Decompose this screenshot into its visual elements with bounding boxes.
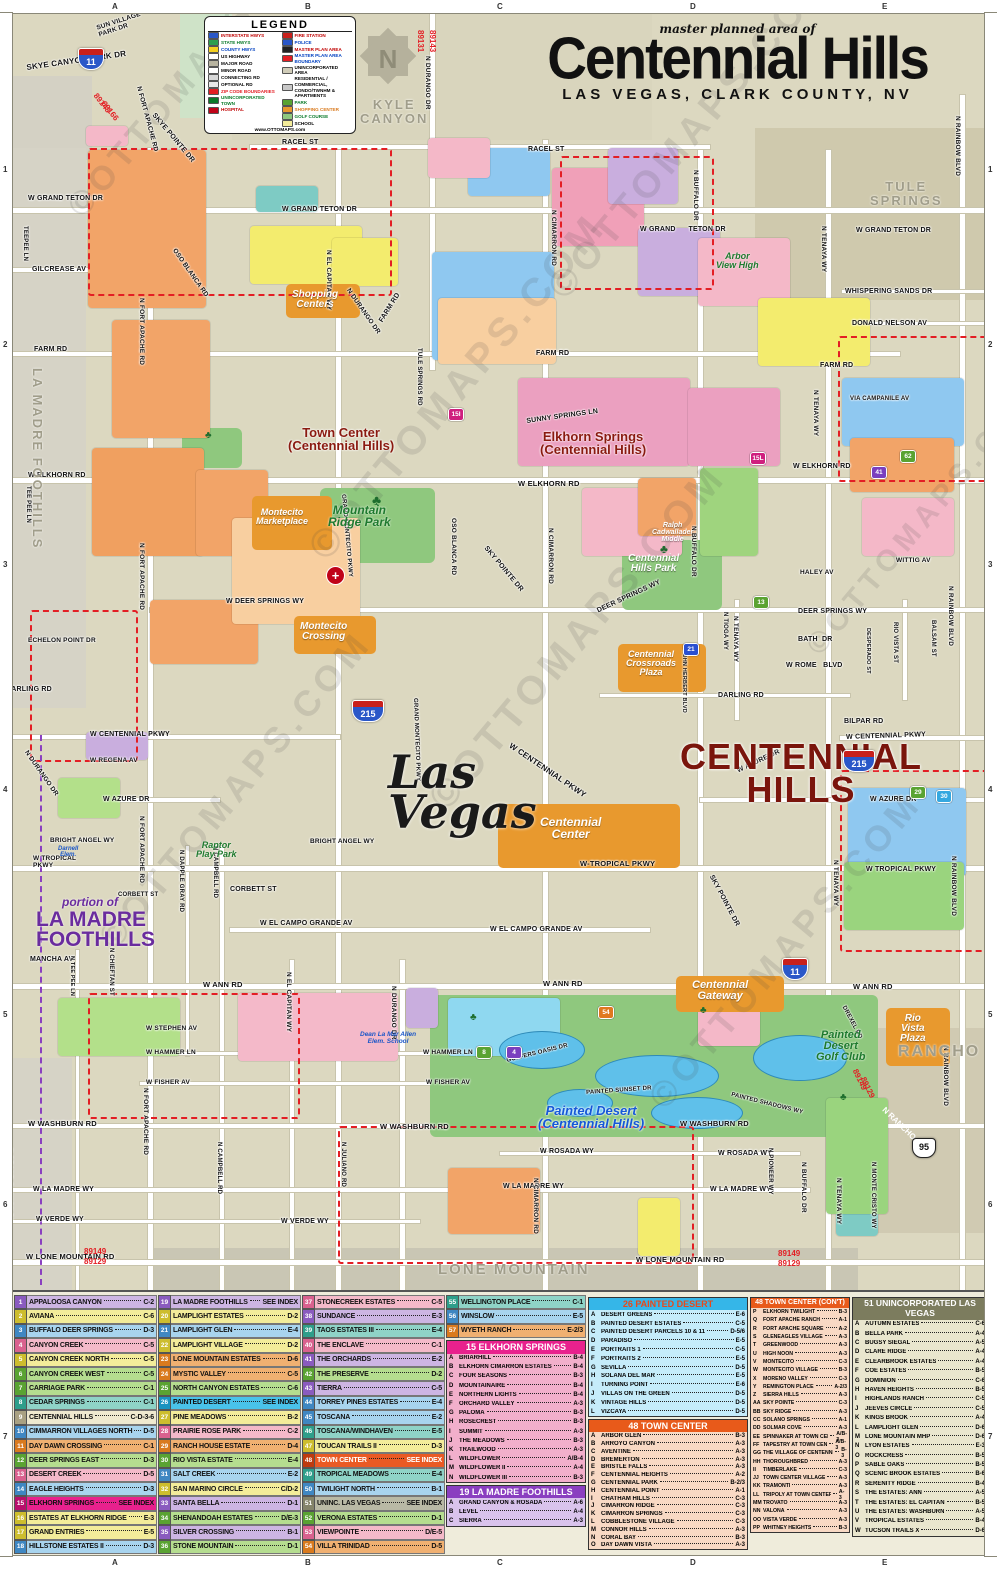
- index-row: 21LAMPLIGHT GLENE-4: [158, 1324, 301, 1338]
- index-row: 35SILVER CROSSINGB-1: [158, 1525, 301, 1539]
- index-row: 15ELKHORN SPRINGSSEE INDEX: [14, 1496, 157, 1510]
- index-name-text: TOWN CENTER: [317, 1457, 367, 1464]
- map-label: W TROPICAL PKWY: [33, 856, 76, 870]
- sub-index-letter: B: [855, 1331, 865, 1337]
- sub-index-row: GCENTENNIAL PARKB-2/3: [589, 1479, 747, 1487]
- sub-index-grid-ref: A-4: [573, 1509, 583, 1515]
- sub-index-name: DAY DAWN VISTA: [601, 1542, 652, 1548]
- index-grid-ref: SEE INDEX: [118, 1500, 154, 1507]
- leader-dots: [115, 1329, 141, 1330]
- leader-dots: [376, 1329, 430, 1330]
- sub-index-letter: FF: [753, 1442, 763, 1448]
- map-label: W ANN RD: [203, 981, 243, 989]
- sub-index-row: MLONE MOUNTAIN MHPD-6: [853, 1432, 987, 1441]
- index-row-name: TAOS ESTATES IIIE-4: [315, 1324, 445, 1338]
- sub-index-row: ZSIERRA HILLSA-3: [751, 1391, 849, 1399]
- index-row: 2AVIANAC-6: [14, 1309, 157, 1323]
- grid-number: 3: [988, 560, 992, 569]
- map-label: W DEER SPRINGS WY: [226, 598, 304, 605]
- us-route-shield-icon: 95: [912, 1138, 936, 1158]
- sub-index-letter: I: [591, 1382, 601, 1388]
- sub-index-name: TRAILWOOD: [459, 1447, 496, 1453]
- sub-index-grid-ref: B-6: [975, 1471, 985, 1477]
- sub-index-letter: W: [855, 1528, 865, 1534]
- zip-boundary: [338, 1126, 694, 1264]
- index-number-chip: 11: [14, 1439, 27, 1453]
- index-number-chip: 17: [14, 1525, 27, 1539]
- map-label: W ELKHORN RD: [518, 480, 580, 488]
- index-grid-ref: E-2: [288, 1471, 298, 1478]
- sub-index-row: TGREENWOODA-3: [751, 1341, 849, 1349]
- index-number-chip: 38: [302, 1309, 315, 1323]
- index-row: 36STONE MOUNTAIND-1: [158, 1540, 301, 1554]
- sub-index-grid-ref: C-3: [735, 1519, 745, 1525]
- leader-dots: [820, 1368, 837, 1369]
- map-index-badge: 8: [476, 1046, 492, 1059]
- sub-index-row: BARROYO CANYONA-3: [589, 1440, 747, 1448]
- map-label: N TIOGA WY: [722, 612, 728, 650]
- map-label: Painted Desert (Centennial Hills): [538, 1104, 644, 1130]
- leader-dots: [235, 1545, 285, 1546]
- sub-index-letter: AA: [753, 1400, 763, 1406]
- sub-index-name: MORENO VALLEY: [763, 1376, 808, 1382]
- sub-index-row: PSABLE OAKSB-5: [853, 1460, 987, 1469]
- freeway-stripe: [323, 702, 997, 727]
- index-grid-ref: C-1: [143, 1443, 154, 1450]
- sub-index-letter: C: [591, 1329, 601, 1335]
- index-grid-ref: C-5: [143, 1371, 154, 1378]
- map-label: Darnell Elem.: [58, 846, 78, 858]
- index-number-chip: 36: [158, 1540, 171, 1554]
- index-number-chip: 26: [158, 1396, 171, 1410]
- map-label: VIA CAMPANILE AV: [850, 396, 909, 402]
- sub-index-letter: BB: [753, 1409, 763, 1415]
- leader-dots: [373, 1358, 430, 1359]
- index-name-text: STONE MOUNTAIN: [173, 1543, 233, 1550]
- sub-index-letter: PP: [753, 1525, 763, 1531]
- map-label: HALEY AV: [800, 570, 834, 577]
- leader-dots: [810, 1377, 837, 1378]
- index-name-text: THE ORCHARDS: [317, 1356, 371, 1363]
- index-row-name: SILVER CROSSINGB-1: [171, 1525, 301, 1539]
- sub-index-letter: O: [591, 1542, 601, 1548]
- sub-index-row: GPALOMAB-3: [447, 1409, 585, 1418]
- sub-index-letter: I: [591, 1496, 601, 1502]
- leader-dots: [787, 1509, 837, 1510]
- sub-index-grid-ref: A-3: [573, 1401, 583, 1407]
- sub-index-grid-ref: E-6: [736, 1312, 745, 1318]
- tree-icon: ♣: [205, 430, 212, 441]
- index-row-name: DEER SPRINGS EASTD-3: [27, 1453, 157, 1467]
- sub-index-row: QFORT APACHE RANCHA-1: [751, 1316, 849, 1324]
- leader-dots: [898, 1379, 974, 1380]
- sub-index-grid-ref: B-3: [839, 1309, 847, 1315]
- index-row-name: CEDAR SPRINGSC-1: [27, 1396, 157, 1410]
- sub-index-name: PARADISO: [601, 1338, 632, 1344]
- leader-dots: [104, 1444, 141, 1445]
- sub-index-grid-ref: B-3: [573, 1475, 583, 1481]
- sub-index-grid-ref: E-3: [976, 1443, 985, 1449]
- index-number-chip: 19: [158, 1295, 171, 1309]
- index-number-chip: 47: [302, 1439, 315, 1453]
- sub-index-letter: II: [753, 1467, 763, 1473]
- leader-dots: [357, 1315, 430, 1316]
- legend-entry: ZIP CODE BOUNDARIES: [208, 88, 279, 95]
- legend-entry: MINOR ROAD: [208, 67, 279, 74]
- leader-dots: [648, 1401, 733, 1402]
- sub-index-grid-ref: B-3: [841, 1447, 847, 1459]
- index-grid-ref: SEE INDEX: [262, 1299, 298, 1306]
- sub-index-name: ELKHORN TWILIGHT: [763, 1309, 815, 1315]
- index-grid-ref: E-2: [432, 1414, 442, 1421]
- index-column: 19LA MADRE FOOTHILLSSEE INDEX20LAMPLIGHT…: [158, 1295, 301, 1554]
- sub-index-row: BLEVELA-4: [447, 1508, 585, 1517]
- leader-dots: [801, 1393, 837, 1394]
- map-label: W FISHER AV: [146, 1080, 190, 1087]
- map-label: N JULIANO RD: [340, 1142, 346, 1187]
- leader-dots: [234, 1329, 285, 1330]
- index-number-chip: 42: [302, 1367, 315, 1381]
- sub-index-grid-ref: A-3: [839, 1392, 847, 1398]
- map-label: DESPERADO ST: [864, 628, 870, 674]
- grid-number: 7: [3, 1432, 7, 1441]
- index-number-chip: 5: [14, 1353, 27, 1367]
- leader-dots: [813, 1526, 836, 1527]
- leader-dots: [799, 1468, 837, 1469]
- index-column: 26 PAINTED DESERTADESERT GREENSE-6BPAINT…: [588, 1295, 748, 1550]
- leader-dots: [657, 1374, 734, 1375]
- leader-dots: [804, 1426, 837, 1427]
- map-label: Painted Desert Golf Club: [816, 1030, 866, 1063]
- map-label: W LA MADRE WY: [33, 1186, 94, 1193]
- legend-entry-label: GOLF COURSE: [295, 114, 329, 120]
- sub-index-row: NNVALONAA-3: [751, 1507, 849, 1515]
- sub-index-row: CCSOLANO SPRINGSA-1: [751, 1416, 849, 1424]
- index-name-text: LAMPLIGHT GLEN: [173, 1327, 232, 1334]
- map-label: WITTIG AV: [896, 558, 931, 565]
- sub-index-letter: R: [753, 1326, 763, 1332]
- index-row: 14EAGLE HEIGHTSD-3: [14, 1482, 157, 1496]
- leader-dots: [83, 1473, 141, 1474]
- map-label: W TROPICAL PKWY: [866, 866, 936, 873]
- index-row-name: EAGLE HEIGHTSD-3: [27, 1482, 157, 1496]
- sub-index-row: GGTHE VILLAGE OF CENTENNIAL SPRINGSB-3: [751, 1449, 849, 1457]
- index-row-name: PRAIRIE ROSE PARKC-2: [171, 1425, 301, 1439]
- index-name-text: ELKHORN SPRINGS: [29, 1500, 94, 1507]
- map-label: OSO BLANCA RD: [449, 518, 456, 575]
- map-label: N RAINBOW BLVD: [946, 586, 953, 646]
- sub-index-row: ADESERT GREENSE-6: [589, 1310, 747, 1319]
- leader-dots: [372, 1545, 430, 1546]
- map-label: BILPAR RD: [844, 718, 883, 725]
- sub-index-letter: C: [591, 1449, 601, 1455]
- sub-index-grid-ref: C-3: [735, 1496, 745, 1502]
- index-grid-ref: E-2: [432, 1356, 442, 1363]
- map-label: N CAMPBELL RD: [216, 1142, 222, 1194]
- sub-index-letter: J: [449, 1438, 459, 1444]
- index-number-chip: 7: [14, 1381, 27, 1395]
- sub-index-name: MONTECITO: [763, 1359, 794, 1365]
- sub-index-row: GSEVILLAD-5: [589, 1363, 747, 1372]
- legend-entry: US HIGHWAY: [208, 53, 279, 60]
- sub-index-name: GLENEAGLES VILLAGE: [763, 1334, 823, 1340]
- sub-index-grid-ref: A-3: [839, 1500, 847, 1506]
- leader-dots: [914, 1407, 973, 1408]
- index-row: 33SANTA BELLAD-1: [158, 1496, 301, 1510]
- sub-index-letter: A: [855, 1321, 865, 1327]
- index-grid-ref: E-3: [144, 1515, 154, 1522]
- leader-dots: [507, 1439, 572, 1440]
- map-label: W LA MADRE WY: [710, 1186, 771, 1193]
- leader-dots: [104, 1300, 142, 1301]
- sub-index-panel: 15 ELKHORN SPRINGSABRIARHILLB-4BELKHORN …: [446, 1340, 586, 1483]
- sub-index-name: GRAND CANYON & ROSADA: [459, 1500, 542, 1506]
- map-label: W GRAND TETON DR: [28, 195, 103, 202]
- sub-index-name: PORTRAITS 1: [601, 1347, 641, 1353]
- map-label: Montecito Marketplace: [256, 508, 308, 526]
- sub-index-letter: V: [753, 1359, 763, 1365]
- index-number-chip: 37: [302, 1295, 315, 1309]
- index-grid-ref: D-2: [287, 1313, 298, 1320]
- index-name-text: WELLINGTON PLACE: [461, 1299, 530, 1306]
- index-row: 48TOWN CENTERSEE INDEX: [302, 1453, 445, 1467]
- leader-dots: [484, 1519, 572, 1520]
- sub-index-name: ROCKCRESS: [865, 1453, 903, 1459]
- interstate-shield-icon: 11: [782, 958, 808, 980]
- index-row-name: LONE MOUNTAIN ESTATESD-6: [171, 1353, 301, 1367]
- leader-dots: [217, 1473, 285, 1474]
- interstate-shield-icon: 11: [78, 48, 104, 70]
- leader-dots: [793, 1410, 836, 1411]
- index-name-text: CENTENNIAL HILLS: [29, 1414, 93, 1421]
- sub-index-grid-ref: B-3: [573, 1410, 583, 1416]
- leader-dots: [816, 1385, 833, 1386]
- map-label: Elkhorn Springs (Centennial Hills): [540, 430, 646, 456]
- leader-dots: [921, 1529, 973, 1530]
- map-label: 89129: [778, 1260, 800, 1268]
- map-label: N FORT APACHE RD: [137, 816, 144, 883]
- index-row: 4CANYON CREEKC-5: [14, 1338, 157, 1352]
- map-label: W REGENA AV: [90, 758, 138, 765]
- sub-index-title: 48 TOWN CENTER (CON'T): [751, 1298, 849, 1308]
- sub-index-title: 15 ELKHORN SPRINGS: [447, 1341, 585, 1353]
- sub-index-name: PAINTED DESERT ESTATES: [601, 1321, 681, 1327]
- neighborhood-patch: [92, 448, 204, 556]
- sub-index-letter: P: [855, 1462, 865, 1468]
- map-label: W CENTENNIAL PKWY: [90, 731, 170, 738]
- sub-index-row: BPAINTED DESERT ESTATESC-5: [589, 1319, 747, 1328]
- map-label: W EL CAMPO GRANDE AV: [490, 926, 583, 933]
- sub-index-row: WMONTECITO VILLAGEB-3: [751, 1366, 849, 1374]
- leader-dots: [827, 1476, 836, 1477]
- sub-index-name: SPINNAKER AT TOWN CENTER 1: [763, 1434, 828, 1440]
- road: [336, 148, 341, 1290]
- map-label: FARM RD: [820, 362, 853, 369]
- sub-index-grid-ref: E-6: [736, 1382, 745, 1388]
- index-name-text: SANTA BELLA: [173, 1500, 219, 1507]
- sub-index-name: CORAL BAY: [601, 1535, 636, 1541]
- map-label: BATH DR: [798, 636, 833, 643]
- map-label: N CIMARRON RD: [531, 1178, 538, 1234]
- sub-index-letter: T: [753, 1342, 763, 1348]
- grid-number: 2: [988, 340, 992, 349]
- sub-index-grid-ref: B-5: [975, 1462, 985, 1468]
- sub-index-row: JVILLAS ON THE GREEND-5: [589, 1390, 747, 1399]
- legend-swatch: [282, 46, 293, 53]
- index-name-text: SUNDANCE: [317, 1313, 355, 1320]
- index-name-text: LONE MOUNTAIN ESTATES: [173, 1356, 261, 1363]
- sub-index-name: WHITNEY HEIGHTS: [763, 1525, 811, 1531]
- index-row-name: CANYON CREEK WESTC-5: [27, 1367, 157, 1381]
- legend-entry-label: UNINCORPORATED TOWN: [221, 95, 279, 106]
- sub-index-name: DESERT GREENS: [601, 1312, 652, 1318]
- sub-index-name: TRIPOLY AT TOWN CENTER: [763, 1492, 831, 1498]
- sub-index-row: HSOLANA DEL MARE-5: [589, 1372, 747, 1381]
- sub-index-name: WILDFLOWER: [459, 1456, 500, 1462]
- sub-index-grid-ref: B-3: [573, 1419, 583, 1425]
- index-row-name: STONE MOUNTAIND-1: [171, 1540, 301, 1554]
- sub-index-name: GREENWOOD: [763, 1342, 798, 1348]
- sub-index-name: SOLMAR COVE: [763, 1425, 802, 1431]
- sub-index-row: ICHATHAM HILLSC-3: [589, 1495, 747, 1503]
- leader-dots: [509, 1374, 571, 1375]
- leader-dots: [366, 1343, 430, 1344]
- index-number-chip: 18: [14, 1540, 27, 1554]
- sub-index-grid-ref: B-5: [975, 1453, 985, 1459]
- index-row: 55WELLINGTON PLACEC-1: [446, 1295, 586, 1309]
- leader-dots: [829, 1443, 833, 1444]
- index-row-name: GRAND ENTRIESE-5: [27, 1525, 157, 1539]
- sub-index-grid-ref: A-5: [975, 1490, 985, 1496]
- sub-index-grid-ref: D-5: [735, 1409, 745, 1415]
- sub-index-panel: 48 TOWN CENTER (CON'T)PELKHORN TWILIGHTB…: [750, 1297, 850, 1533]
- road: [0, 984, 997, 989]
- leader-dots: [908, 1369, 973, 1370]
- index-grid-ref: E-4: [288, 1327, 298, 1334]
- map-label: W EL CAMPO GRANDE AV: [260, 920, 353, 927]
- index-row: 29RANCH HOUSE ESTATED-4: [158, 1439, 301, 1453]
- legend-swatch: [208, 67, 219, 74]
- sub-index-grid-ref: B-4: [573, 1355, 583, 1361]
- sub-index-row: RSERENITY RIDGEB-4: [853, 1479, 987, 1488]
- index-row: 9CENTENNIAL HILLSC-D-3-6: [14, 1410, 157, 1424]
- sub-index-name: KINGS BROOK: [865, 1415, 908, 1421]
- sub-index-letter: LL: [753, 1492, 763, 1498]
- leader-dots: [643, 1357, 734, 1358]
- sub-index-grid-ref: A-6: [573, 1500, 583, 1506]
- map-label: W LONE MOUNTAIN RD: [636, 1256, 724, 1264]
- sub-index-letter: M: [855, 1434, 865, 1440]
- leader-dots: [397, 1300, 429, 1301]
- index-row-name: CIMMARRON VILLAGES NORTHD-5: [27, 1425, 157, 1439]
- index-name-text: HILLSTONE ESTATES II: [29, 1543, 104, 1550]
- sub-index-row: LLAMPLIGHT GLEND-6: [853, 1423, 987, 1432]
- sub-index-row: FFTAPESTRY AT TOWN CENTERA/B-3: [751, 1441, 849, 1449]
- sub-index-grid-ref: A-3: [573, 1429, 583, 1435]
- index-row: 13DESERT CREEKD-5: [14, 1468, 157, 1482]
- legend-entry: MAJOR ROAD: [208, 60, 279, 67]
- leader-dots: [507, 1384, 571, 1385]
- map-label: W HAMMER LN: [146, 1050, 196, 1057]
- neighborhood-patch: [428, 138, 490, 178]
- map-label: CORBETT ST: [230, 886, 277, 893]
- sub-index-grid-ref: A-1: [839, 1417, 847, 1423]
- leader-dots: [245, 1343, 286, 1344]
- index-row: 8CEDAR SPRINGSC-1: [14, 1396, 157, 1410]
- index-row-name: NORTH CANYON ESTATESC-6: [171, 1381, 301, 1395]
- sub-index-row: HHAVEN HEIGHTSB-5: [853, 1385, 987, 1394]
- map-label: N CIMARRON RD: [549, 210, 556, 266]
- legend-entry-label: MAJOR ROAD: [221, 61, 252, 67]
- sub-index-name: SKY RIDGE: [763, 1409, 791, 1415]
- sub-index-row: BBSKY RIDGEA-3: [751, 1408, 849, 1416]
- index-grid-ref: C-5: [431, 1299, 442, 1306]
- sub-index-name: THE ESTATES: WASHBURN: [865, 1509, 944, 1515]
- leader-dots: [918, 1482, 974, 1483]
- legend-swatch: [282, 55, 293, 62]
- sub-index-letter: A: [449, 1355, 459, 1361]
- sub-index-row: STHE ESTATES: ANNA-5: [853, 1489, 987, 1498]
- index-number-chip: 25: [158, 1381, 171, 1395]
- leader-dots: [56, 1315, 141, 1316]
- index-grid-ref: E-2/3: [567, 1327, 583, 1334]
- map-index-badge: 13: [753, 596, 769, 609]
- sub-index-letter: I: [449, 1429, 459, 1435]
- sub-index-name: TOWN CENTER VILLAGE: [763, 1475, 825, 1481]
- index-row-name: LAMPLIGHT VILLAGED-2: [171, 1338, 301, 1352]
- sub-index-row: KCIMARRON SPRINGSC-3: [589, 1510, 747, 1518]
- index-number-chip: 56: [446, 1309, 459, 1323]
- index-grid-ref: C-D-3-6: [131, 1414, 155, 1421]
- leader-dots: [513, 1329, 565, 1330]
- sub-index-row: IITIMBERLAKEC-3: [751, 1466, 849, 1474]
- sub-index-row: PPWHITNEY HEIGHTSB-3: [751, 1524, 849, 1532]
- index-row-name: VERONA ESTATESD-1: [315, 1511, 445, 1525]
- index-name-text: MYSTIC VALLEY: [173, 1371, 226, 1378]
- index-grid-ref: B-1: [287, 1529, 298, 1536]
- index-grid-ref: D-3: [143, 1543, 154, 1550]
- leader-dots: [916, 1388, 973, 1389]
- map-label: N BUFFALO DR: [691, 170, 698, 221]
- leader-dots: [391, 1473, 430, 1474]
- sub-index-name: CLEARBROOK ESTATES: [865, 1359, 936, 1365]
- index-number-chip: 49: [302, 1468, 315, 1482]
- index-grid-ref: E-5: [573, 1313, 583, 1320]
- leader-dots: [480, 1510, 571, 1511]
- leader-dots: [905, 1454, 973, 1455]
- legend-entry: COUNTY HWYS: [208, 46, 279, 53]
- sub-index-grid-ref: E-5: [736, 1356, 745, 1362]
- index-row-name: THE PRESERVED-2: [315, 1367, 445, 1381]
- leader-dots: [243, 1430, 285, 1431]
- sub-index-row: BBELLA PARKA-4: [853, 1329, 987, 1338]
- index-row-name: TOWN CENTERSEE INDEX: [315, 1453, 445, 1467]
- index-number-chip: 44: [302, 1396, 315, 1410]
- sub-index-row: ECLEARBROOK ESTATESA-4: [853, 1357, 987, 1366]
- sub-index-name: BREMERTON: [601, 1457, 640, 1463]
- sub-index-panel: 48 TOWN CENTERAARBOR GLENB-3BARROYO CANY…: [588, 1419, 748, 1550]
- map-label: Centennial Hills Park: [628, 554, 679, 574]
- index-grid-ref: D-3: [143, 1327, 154, 1334]
- index-row-name: LAMPLIGHT ESTATESD-2: [171, 1309, 301, 1323]
- index-row: 7CARRIAGE PARKC-1: [14, 1381, 157, 1395]
- road: [230, 928, 650, 932]
- sub-index-name: WILDFLOWER II: [459, 1465, 505, 1471]
- sub-index-row: YREMINGTON PLACEA-2/3: [751, 1383, 849, 1391]
- sub-index-name: AUTUMN ESTATES: [865, 1321, 919, 1327]
- map-label: SKY POINTE DR: [708, 874, 741, 928]
- index-row: 54VILLA TRINIDADD-5: [302, 1540, 445, 1554]
